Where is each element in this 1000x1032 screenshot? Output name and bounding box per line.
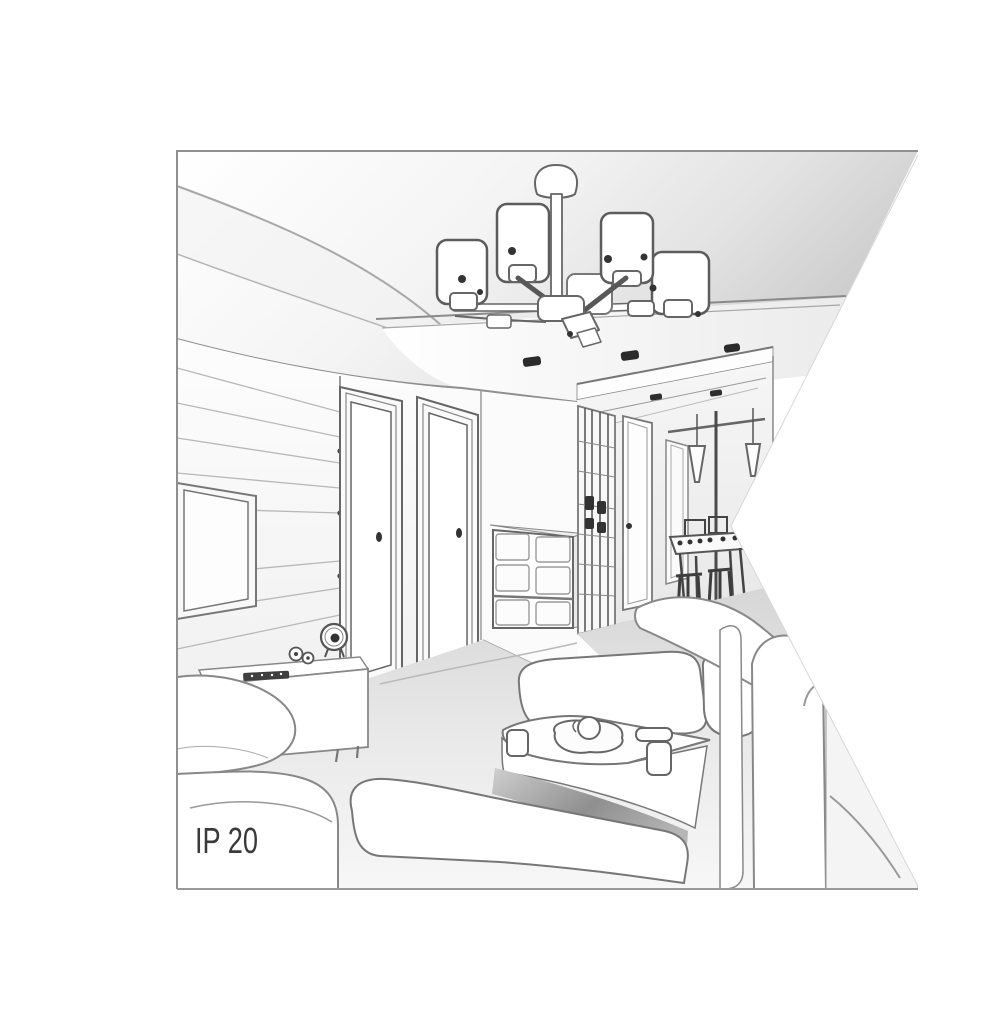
door-left (340, 387, 402, 694)
ip-rating-label: IP 20 (195, 820, 258, 861)
teapot (578, 717, 600, 739)
cup (507, 730, 528, 756)
hallway (577, 347, 773, 634)
hallway-wardrobe (578, 406, 615, 634)
sofa-right-armrest (752, 635, 826, 889)
door-handle (456, 528, 462, 538)
plate (636, 728, 672, 741)
chandelier-stem (551, 194, 562, 298)
chandelier-canopy (535, 165, 577, 198)
sofa-right-seat-edge (720, 626, 743, 889)
door-right (417, 397, 478, 684)
door-handle (376, 532, 382, 542)
door-leaf (351, 402, 391, 677)
drawer-cabinet (490, 525, 581, 628)
interior-sketch: IP 20 (40, 16, 1000, 1016)
cup (647, 742, 671, 775)
door-leaf (429, 413, 467, 669)
tv-screen (184, 490, 248, 611)
hall-window (666, 440, 688, 584)
wall-tv (177, 483, 256, 619)
hallway-door (623, 416, 652, 610)
interior-sketch-canvas: IP 20 (40, 16, 1000, 1016)
chandelier-bracket (487, 315, 511, 328)
door-handle (626, 523, 632, 529)
